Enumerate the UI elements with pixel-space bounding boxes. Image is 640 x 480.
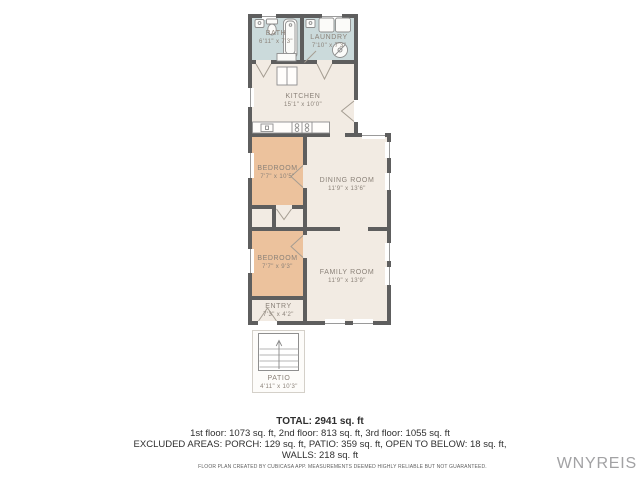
window-bedroom1-west [246,153,254,178]
wall-dining-family-right [368,227,391,231]
door-opening-laundry [317,60,332,64]
floor-bedroom-2 [250,229,305,298]
wall-kitchen-south-left [248,133,330,137]
door-opening-front [258,321,277,325]
wall-hall-stub [272,209,276,227]
window-laundry-north [322,12,342,20]
window-dining-north [362,131,385,139]
door-opening-bath [256,60,271,64]
excluded-areas-line: EXCLUDED AREAS: PORCH: 129 sq. ft, PATIO… [0,439,640,450]
floor-entry [250,298,305,323]
door-opening-hall [276,205,292,209]
window-family-east-1 [385,243,393,261]
watermark: WNYREIS [557,455,637,473]
window-bath-north [262,12,276,20]
floor-kitchen [250,62,356,135]
floor-hall [250,207,305,229]
window-dining-east-1 [385,142,393,158]
wall-entry-east [303,296,307,325]
floor-bath [250,16,302,62]
door-opening-bedroom-2 [303,235,307,258]
wall-dining-family-left [307,227,340,231]
window-family-east-2 [385,267,393,285]
area-summary: TOTAL: 2941 sq. ft 1st floor: 1073 sq. f… [0,416,640,462]
door-opening-kitchen-exterior [354,100,358,122]
floor-plan-page: BATH 6'11" x 7'3" LAUNDRY 7'10" x 7'3" K… [0,0,640,480]
floor-areas-line: 1st floor: 1073 sq. ft, 2nd floor: 813 s… [0,428,640,439]
window-family-south-1 [325,319,345,327]
floor-bedroom-1 [250,135,305,207]
window-bedroom2-west [246,249,254,273]
window-kitchen-west [246,88,254,107]
window-dining-east-2 [385,173,393,190]
wall-bedroom2-south [248,296,307,300]
wall-bath-laundry-divider [300,14,304,64]
wall-kitchen-south-right [345,133,354,137]
disclaimer-text: FLOOR PLAN CREATED BY CUBICASA APP. MEAS… [45,464,640,470]
window-family-south-2 [353,319,373,327]
total-area-line: TOTAL: 2941 sq. ft [0,416,640,428]
floor-family-room [305,229,389,323]
floor-dining-room [305,135,389,229]
door-opening-bedroom-1 [303,165,307,188]
wall-bedroom2-north [248,227,307,231]
floor-laundry [302,16,356,62]
porch-steps [258,333,299,371]
walls-area-line: WALLS: 218 sq. ft [0,450,640,461]
